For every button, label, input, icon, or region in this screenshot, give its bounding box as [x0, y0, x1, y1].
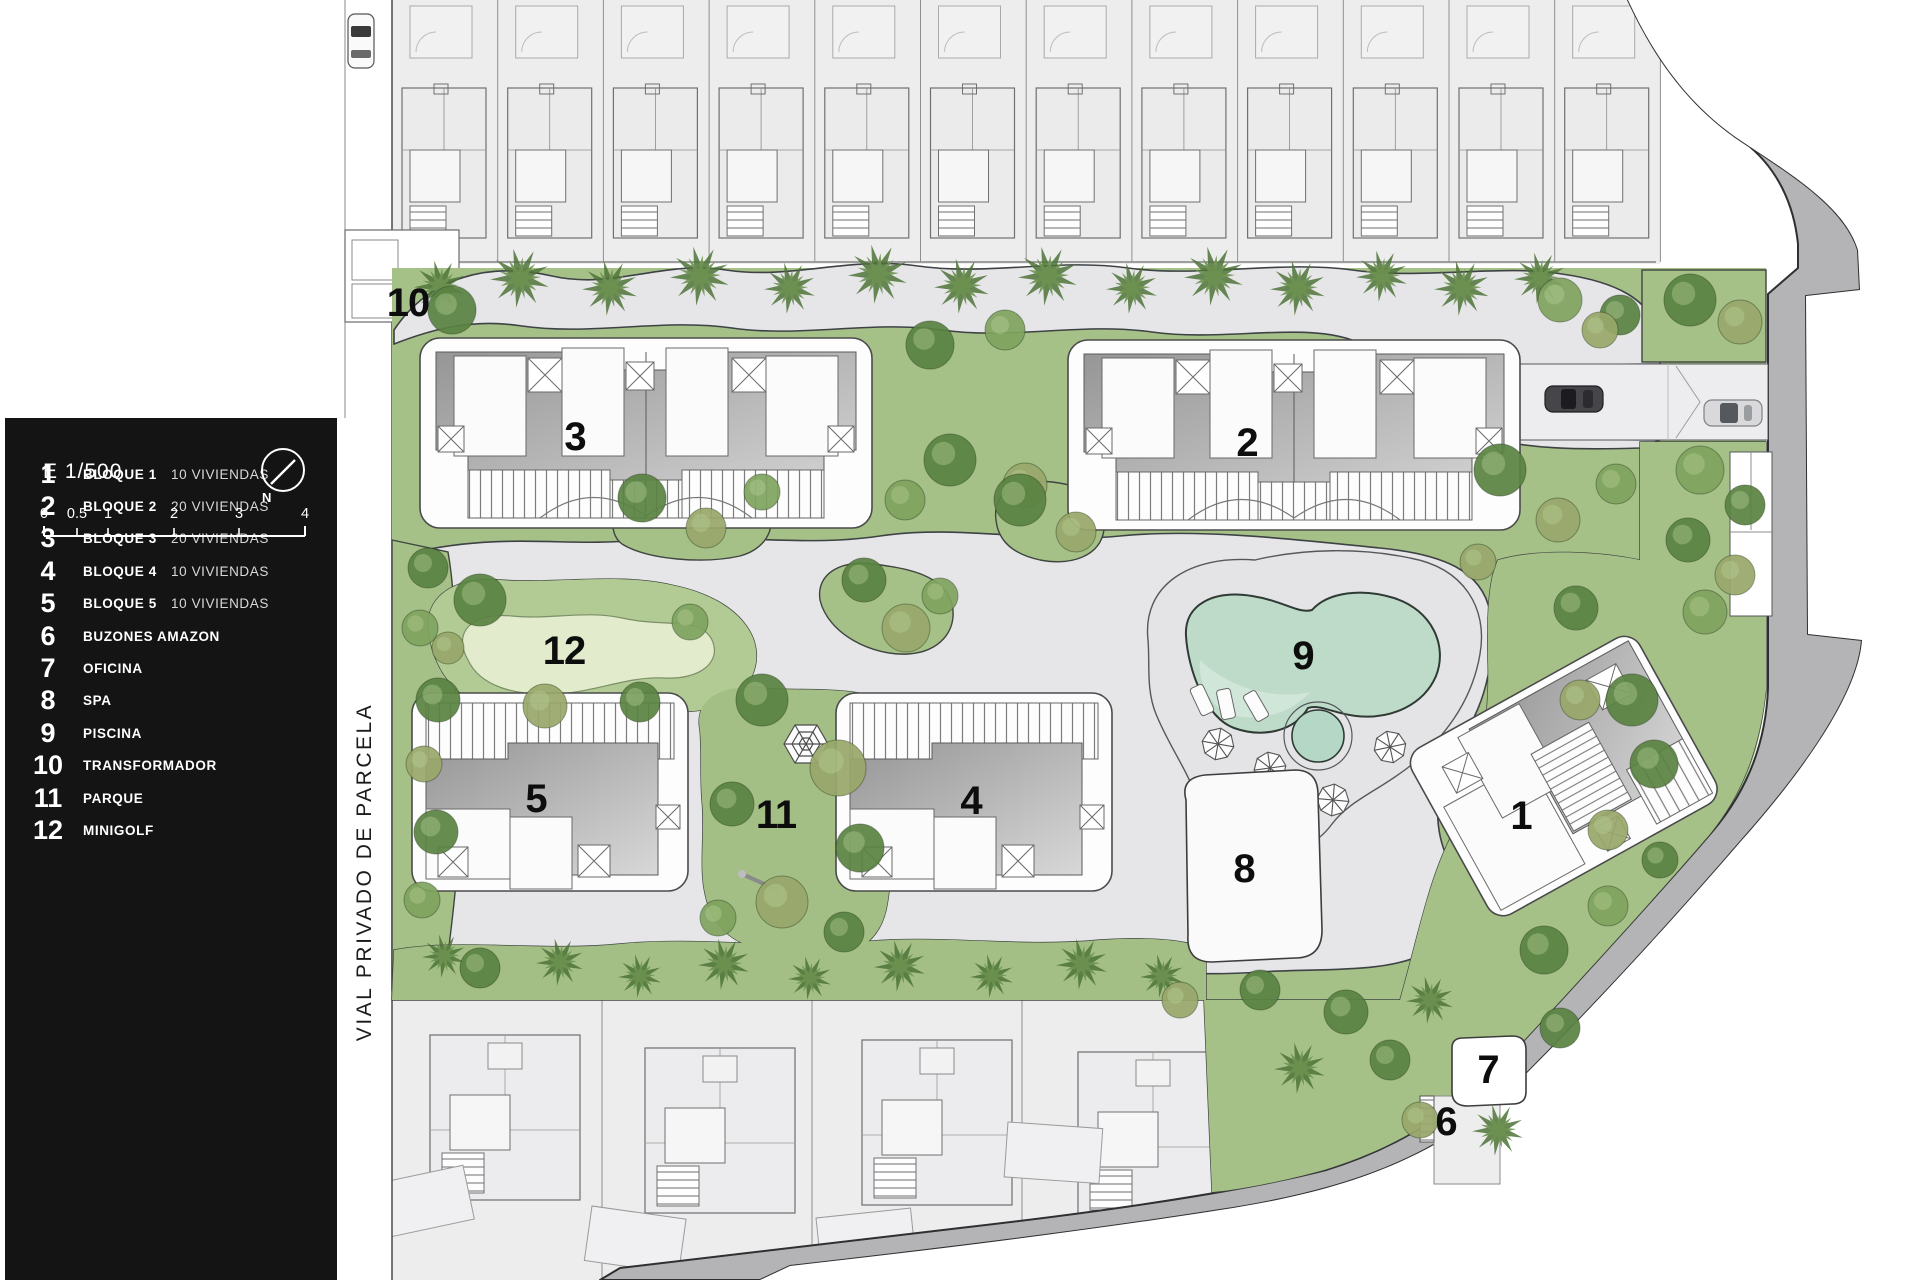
marker-bloque-4: 4	[960, 781, 981, 821]
marker-bloque-1: 1	[1510, 796, 1531, 836]
scale-tick: 0.5	[67, 506, 87, 522]
legend-item-buzones: 6BUZONES AMAZON	[13, 620, 337, 652]
street-name: VIAL PRIVADO DE PARCELA	[353, 703, 377, 1041]
neighbour-pool	[1004, 1122, 1103, 1183]
legend-item-parque: 11PARQUE	[13, 782, 337, 814]
scale-tick: 1	[104, 506, 112, 522]
scale-tick: 2	[170, 506, 178, 522]
bloque-2-building	[1068, 340, 1520, 530]
scale-and-north: E 1/500 N 0 0.5 1 2 3 4	[5, 418, 337, 588]
car-silver	[1704, 400, 1762, 426]
legend-item-transformador: 10TRANSFORMADOR	[13, 750, 337, 782]
marker-bloque-3: 3	[564, 417, 585, 457]
svg-text:N: N	[262, 490, 271, 505]
scale-bar	[44, 526, 305, 536]
legend-item-minigolf: 12MINIGOLF	[13, 814, 337, 846]
north-arrow-icon: N	[262, 449, 304, 505]
kids-pool	[1292, 710, 1344, 762]
car-dark	[1545, 386, 1603, 412]
marker-spa: 8	[1233, 849, 1254, 889]
legend-item-piscina: 9PISCINA	[13, 717, 337, 749]
marker-bloque-2: 2	[1236, 423, 1257, 463]
legend-item-oficina: 7OFICINA	[13, 652, 337, 684]
scale-tick: 4	[301, 506, 309, 522]
neighbourhood-top	[392, 0, 1660, 264]
marker-buzones: 6	[1435, 1102, 1456, 1142]
scale-tick: 0	[40, 506, 48, 522]
marker-oficina: 7	[1477, 1050, 1498, 1090]
marker-parque: 11	[756, 795, 796, 835]
legend-item-bloque-5: 5BLOQUE 510 VIVIENDAS	[13, 588, 337, 620]
site-plan-sheet: 10 3 2 12 9 5 4 11 1 8 7 6 VIAL PRIVADO …	[0, 0, 1920, 1280]
parked-car-street	[348, 14, 374, 68]
marker-bloque-5: 5	[525, 779, 546, 819]
marker-piscina: 9	[1292, 636, 1313, 676]
marker-minigolf: 12	[543, 631, 586, 671]
neighbour-house	[645, 1048, 795, 1213]
scale-tick: 3	[235, 506, 243, 522]
neighbour-house	[862, 1040, 1012, 1205]
marker-transformador: 10	[387, 283, 430, 323]
legend-panel: 1BLOQUE 110 VIVIENDAS 2BLOQUE 220 VIVIEN…	[5, 418, 337, 1280]
legend-item-spa: 8SPA	[13, 685, 337, 717]
scale-text: E 1/500	[43, 460, 122, 483]
